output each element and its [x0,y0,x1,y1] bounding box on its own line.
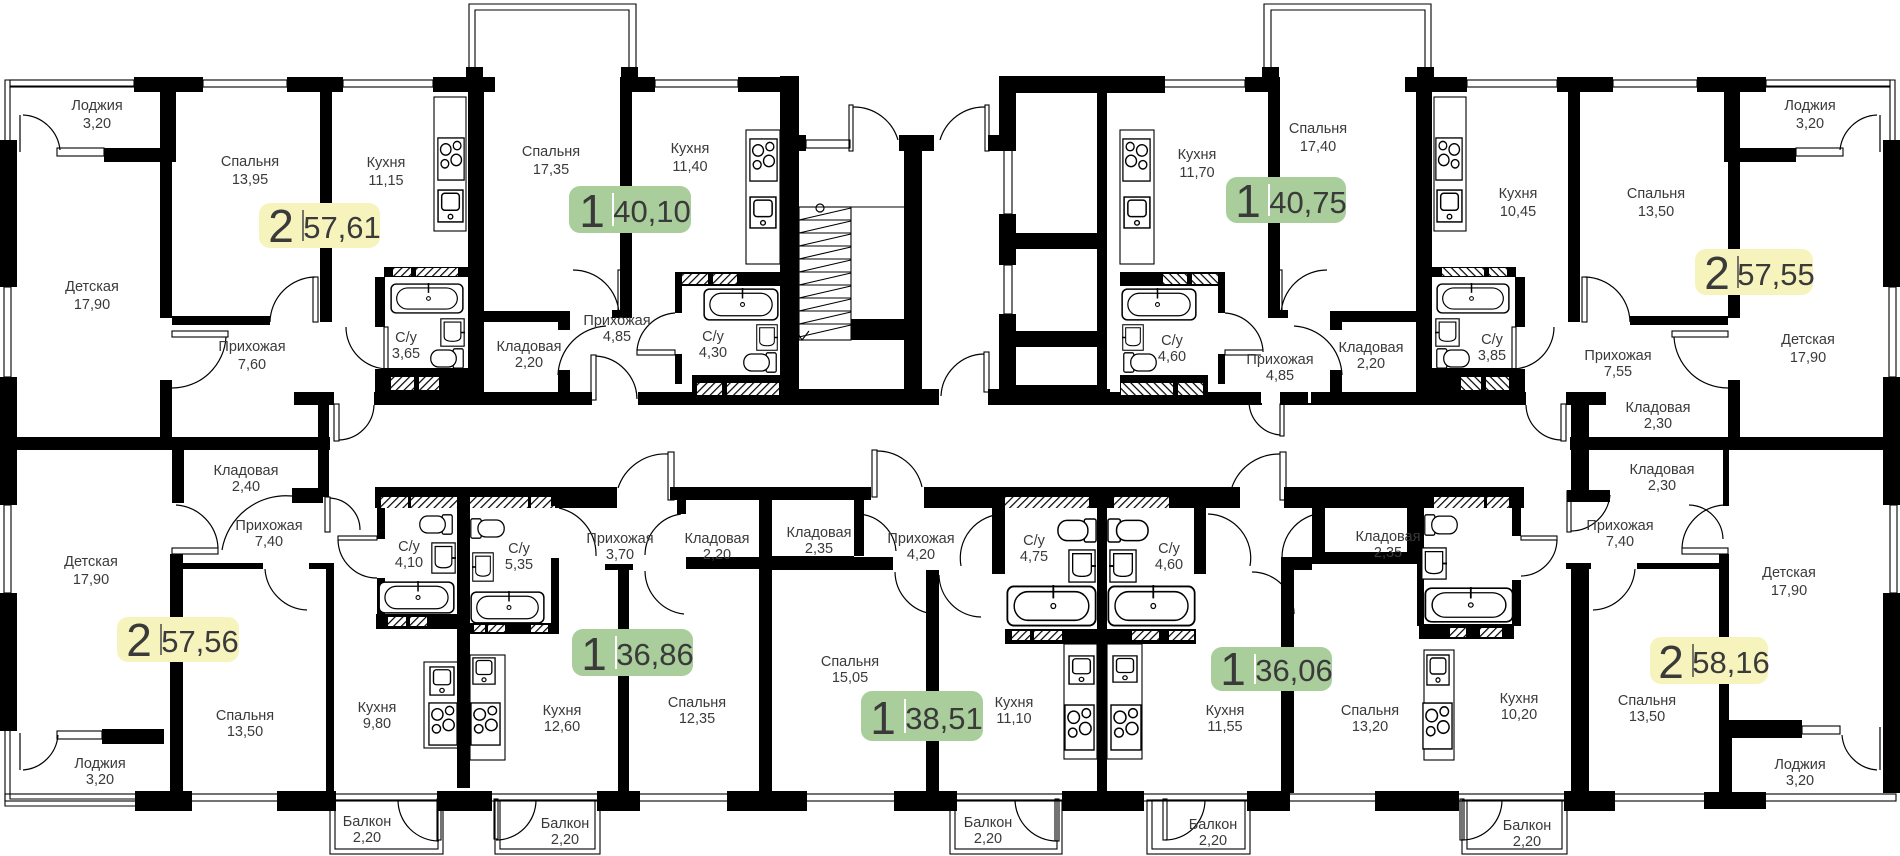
svg-text:13,50: 13,50 [1629,709,1665,725]
svg-text:Спальня: Спальня [821,654,879,670]
svg-text:Кладовая: Кладовая [214,463,279,479]
svg-text:4,10: 4,10 [395,555,423,571]
svg-text:Лоджия: Лоджия [1784,98,1835,114]
svg-text:Спальня: Спальня [1627,186,1685,202]
svg-text:57,61: 57,61 [303,210,381,245]
svg-text:38,51: 38,51 [905,701,983,736]
svg-text:2,20: 2,20 [1513,834,1541,850]
svg-text:Спальня: Спальня [221,154,279,170]
svg-text:4,75: 4,75 [1020,549,1048,565]
svg-text:3,20: 3,20 [1796,116,1824,132]
svg-text:Кухня: Кухня [1499,186,1538,202]
svg-text:4,60: 4,60 [1158,349,1186,365]
svg-text:2: 2 [268,200,294,252]
svg-text:17,90: 17,90 [74,297,110,313]
svg-text:2,20: 2,20 [551,832,579,848]
svg-text:Спальня: Спальня [668,695,726,711]
svg-text:2,20: 2,20 [1357,356,1385,372]
svg-text:11,15: 11,15 [368,173,403,189]
svg-text:С/у: С/у [702,329,725,345]
svg-text:Кладовая: Кладовая [1356,529,1421,545]
svg-text:11,55: 11,55 [1207,719,1242,735]
svg-text:17,90: 17,90 [1771,583,1807,599]
svg-text:Прихожая: Прихожая [586,531,653,547]
svg-text:Лоджия: Лоджия [1774,757,1825,773]
svg-text:12,35: 12,35 [679,711,715,727]
svg-text:Кухня: Кухня [671,141,710,157]
svg-text:4,60: 4,60 [1155,557,1183,573]
svg-text:Кухня: Кухня [995,695,1034,711]
svg-text:Балкон: Балкон [964,815,1013,831]
svg-text:17,35: 17,35 [533,162,569,178]
svg-text:17,90: 17,90 [1790,350,1826,366]
svg-text:40,10: 40,10 [613,194,691,229]
svg-text:15,05: 15,05 [832,670,868,686]
svg-text:Прихожая: Прихожая [235,518,302,534]
svg-text:2,30: 2,30 [1648,478,1676,494]
svg-text:2: 2 [1658,636,1684,688]
svg-text:4,85: 4,85 [603,329,631,345]
svg-text:Кухня: Кухня [367,155,406,171]
svg-text:12,60: 12,60 [544,719,580,735]
svg-text:Кладовая: Кладовая [685,531,750,547]
svg-text:7,60: 7,60 [238,357,266,373]
svg-text:Прихожая: Прихожая [218,339,285,355]
svg-text:Балкон: Балкон [1189,817,1238,833]
svg-text:2,20: 2,20 [353,830,381,846]
svg-text:С/у: С/у [508,541,531,557]
svg-text:7,40: 7,40 [1606,534,1634,550]
svg-text:Кухня: Кухня [358,700,397,716]
svg-text:3,85: 3,85 [1478,348,1506,364]
svg-text:Балкон: Балкон [541,816,590,832]
svg-text:13,95: 13,95 [232,172,268,188]
svg-text:2,20: 2,20 [703,547,731,563]
svg-text:57,55: 57,55 [1737,257,1815,292]
svg-text:Кухня: Кухня [1500,691,1539,707]
svg-text:2,20: 2,20 [1199,833,1227,849]
svg-text:Спальня: Спальня [1618,693,1676,709]
svg-text:Спальня: Спальня [522,144,580,160]
svg-text:Кухня: Кухня [543,703,582,719]
svg-text:Прихожая: Прихожая [887,531,954,547]
svg-text:11,10: 11,10 [996,711,1031,727]
svg-text:Кладовая: Кладовая [497,339,562,355]
svg-text:Прихожая: Прихожая [1246,352,1313,368]
svg-text:1: 1 [579,185,605,237]
svg-text:Спальня: Спальня [1289,121,1347,137]
svg-text:17,40: 17,40 [1300,139,1336,155]
svg-text:13,20: 13,20 [1352,719,1388,735]
svg-text:Прихожая: Прихожая [1584,348,1651,364]
svg-text:С/у: С/у [398,539,421,555]
svg-text:Лоджия: Лоджия [74,756,125,772]
svg-text:2,30: 2,30 [1644,416,1672,432]
svg-text:Лоджия: Лоджия [71,98,122,114]
svg-text:10,20: 10,20 [1501,707,1537,723]
svg-text:Детская: Детская [1762,565,1816,581]
svg-text:1: 1 [870,692,896,744]
svg-text:5,35: 5,35 [505,557,533,573]
svg-text:2,40: 2,40 [232,479,260,495]
svg-text:36,06: 36,06 [1255,653,1333,688]
svg-text:Кухня: Кухня [1206,703,1245,719]
svg-text:С/у: С/у [1481,332,1504,348]
svg-text:Детская: Детская [65,279,119,295]
svg-text:Прихожая: Прихожая [583,313,650,329]
svg-text:11,40: 11,40 [672,159,707,175]
svg-text:9,80: 9,80 [363,716,391,732]
svg-text:С/у: С/у [1158,541,1181,557]
svg-text:Спальня: Спальня [216,708,274,724]
svg-text:Детская: Детская [64,554,118,570]
svg-text:7,55: 7,55 [1604,364,1632,380]
svg-text:Кладовая: Кладовая [787,525,852,541]
svg-text:2,20: 2,20 [515,355,543,371]
svg-text:2,35: 2,35 [1374,545,1402,561]
svg-text:Прихожая: Прихожая [1586,518,1653,534]
svg-text:Кладовая: Кладовая [1626,400,1691,416]
svg-text:Кухня: Кухня [1178,147,1217,163]
svg-text:2: 2 [1704,247,1730,299]
svg-text:3,65: 3,65 [392,346,420,362]
svg-text:4,20: 4,20 [907,547,935,563]
svg-text:17,90: 17,90 [73,572,109,588]
svg-text:57,56: 57,56 [161,624,239,659]
svg-text:13,50: 13,50 [227,724,263,740]
svg-text:Балкон: Балкон [343,814,392,830]
svg-text:3,70: 3,70 [606,547,634,563]
svg-text:4,30: 4,30 [699,345,727,361]
svg-text:4,85: 4,85 [1266,368,1294,384]
svg-text:Спальня: Спальня [1341,703,1399,719]
svg-text:11,70: 11,70 [1179,165,1214,181]
svg-text:С/у: С/у [1161,333,1184,349]
svg-text:Детская: Детская [1781,332,1835,348]
svg-text:36,86: 36,86 [616,637,694,672]
svg-text:40,75: 40,75 [1269,185,1347,220]
svg-text:1: 1 [1235,175,1261,227]
svg-text:С/у: С/у [1023,533,1046,549]
svg-text:3,20: 3,20 [83,116,111,132]
svg-text:3,20: 3,20 [86,772,114,788]
svg-text:С/у: С/у [395,330,418,346]
svg-text:58,16: 58,16 [1692,645,1770,680]
svg-text:13,50: 13,50 [1638,204,1674,220]
svg-text:1: 1 [581,628,607,680]
svg-text:1: 1 [1220,643,1246,695]
svg-text:3,20: 3,20 [1786,773,1814,789]
svg-text:Балкон: Балкон [1503,818,1552,834]
svg-text:2: 2 [126,614,152,666]
svg-text:7,40: 7,40 [255,534,283,550]
svg-text:Кладовая: Кладовая [1339,340,1404,356]
svg-text:10,45: 10,45 [1500,204,1536,220]
svg-text:2,35: 2,35 [805,541,833,557]
svg-text:Кладовая: Кладовая [1630,462,1695,478]
svg-text:2,20: 2,20 [974,831,1002,847]
